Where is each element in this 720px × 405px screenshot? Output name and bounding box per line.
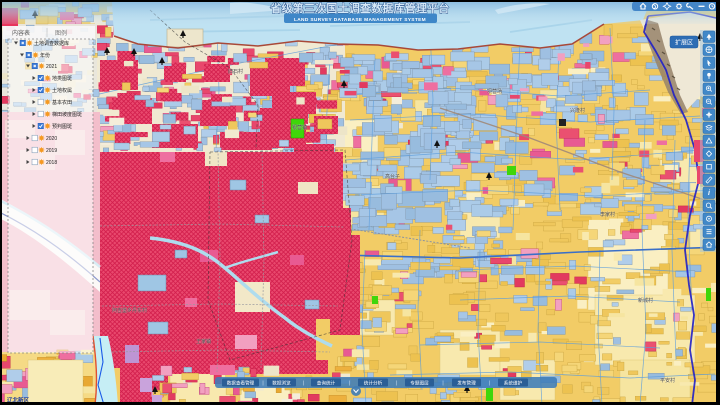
svg-text:阿吉堡乡丹东村: 阿吉堡乡丹东村 xyxy=(112,307,147,314)
svg-text:李家村: 李家村 xyxy=(600,211,615,218)
svg-text:统计分析: 统计分析 xyxy=(364,380,383,387)
svg-text:2020: 2020 xyxy=(46,136,57,142)
svg-text:图例: 图例 xyxy=(55,29,67,37)
svg-text:|: | xyxy=(349,381,350,387)
svg-text:数据查看管理: 数据查看管理 xyxy=(227,380,255,387)
svg-text:新城村: 新城村 xyxy=(638,297,653,304)
svg-text:旧石村: 旧石村 xyxy=(228,68,243,75)
svg-text:数据浏览: 数据浏览 xyxy=(272,380,291,387)
svg-text:|: | xyxy=(442,381,443,387)
svg-text:专题图层: 专题图层 xyxy=(410,380,429,387)
svg-text:高台子: 高台子 xyxy=(385,173,400,180)
svg-text:2019: 2019 xyxy=(46,148,57,154)
svg-text:|: | xyxy=(396,381,397,387)
svg-text:土地权属: 土地权属 xyxy=(52,87,72,94)
svg-text:坝营场: 坝营场 xyxy=(487,88,502,95)
svg-text:内容表: 内容表 xyxy=(12,29,30,37)
svg-text:银营镇: 银营镇 xyxy=(292,124,307,131)
svg-text:查询统计: 查询统计 xyxy=(317,380,336,387)
svg-text:|: | xyxy=(489,381,490,387)
svg-text:|: | xyxy=(303,381,304,387)
svg-text:省级第三次国土调查数据库管理平台: 省级第三次国土调查数据库管理平台 xyxy=(269,1,449,15)
svg-text:梯田坡度图斑: 梯田坡度图斑 xyxy=(52,111,82,118)
svg-text:2018: 2018 xyxy=(46,160,57,166)
svg-text:基本农田: 基本农田 xyxy=(52,99,72,106)
svg-text:发布管理: 发布管理 xyxy=(457,380,476,387)
svg-text:地类图斑: 地类图斑 xyxy=(52,75,72,82)
svg-text:年份: 年份 xyxy=(40,52,50,59)
svg-text:|: | xyxy=(262,381,263,387)
svg-text:土地调查数据库: 土地调查数据库 xyxy=(34,40,69,47)
svg-text:预判图斑: 预判图斑 xyxy=(52,123,72,130)
svg-text:平安村: 平安村 xyxy=(660,377,675,384)
svg-text:LAND SURVEY DATABASE MANAGEMEN: LAND SURVEY DATABASE MANAGEMENT SYSTEM xyxy=(294,17,426,23)
svg-text:兴隆村: 兴隆村 xyxy=(570,107,585,114)
svg-text:王家镇: 王家镇 xyxy=(196,338,211,345)
svg-text:2021: 2021 xyxy=(46,64,57,70)
svg-text:系统维护: 系统维护 xyxy=(504,380,523,387)
svg-text:扩展区: 扩展区 xyxy=(675,39,693,47)
